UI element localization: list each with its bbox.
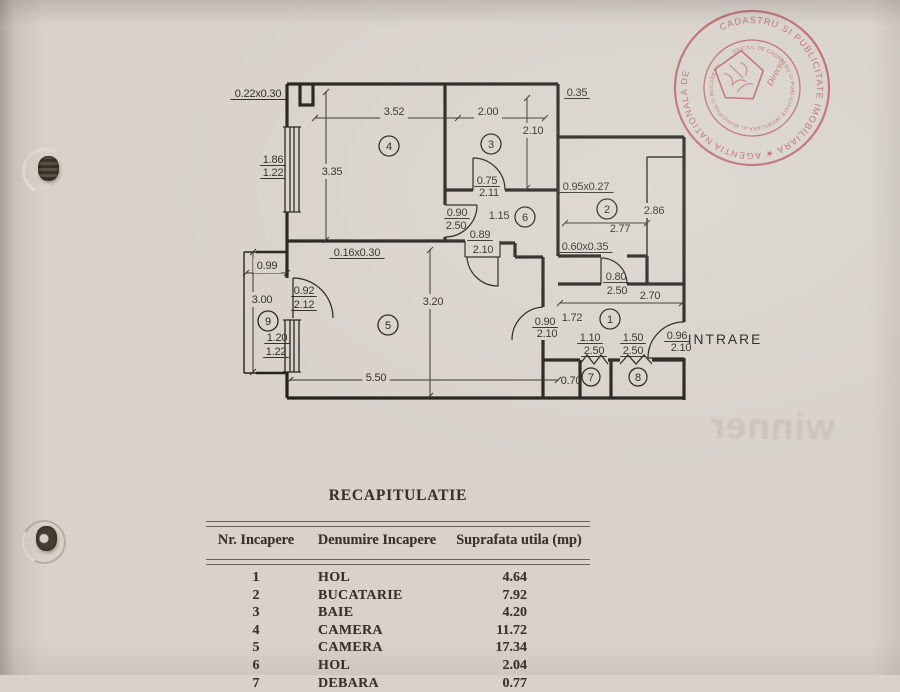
dimension-label: INTRARE — [688, 332, 763, 347]
dimension-label: 0.75 — [477, 175, 498, 187]
binder-ring — [36, 526, 57, 551]
room-number: 5 — [385, 320, 391, 332]
table-cell: 5 — [206, 639, 306, 657]
dimension-label: 2.50 — [623, 345, 644, 357]
dimension-label: 0.35 — [567, 87, 588, 99]
table-cell: 11.72 — [448, 622, 590, 640]
table-cell: 4.64 — [448, 569, 590, 587]
dimension-label: 2.10 — [473, 244, 494, 256]
dimension-label: 2.70 — [640, 290, 661, 302]
dimension-label: 0.90 — [535, 316, 556, 328]
bleed-through-watermark: winner — [662, 404, 883, 450]
stamp-coat-of-arms-detail — [722, 58, 755, 93]
table-cell: CAMERA — [306, 639, 448, 657]
room-number: 2 — [604, 204, 610, 216]
table-cell: 4.20 — [448, 604, 590, 622]
table-cell: 0.77 — [448, 675, 590, 692]
recap-title: RECAPITULATIE — [206, 487, 590, 509]
stamp-outer-text: CADASTRU SI PUBLICITATE IMOBILIARA ★ AGE… — [653, 0, 851, 187]
dimension-label: 3.52 — [384, 106, 405, 118]
dimension-label: 0.16x0.30 — [334, 247, 381, 259]
room-number: 9 — [265, 316, 271, 328]
dimension-label: 0.22x0.30 — [235, 88, 282, 100]
column-header-denumire: Denumire Incapere — [306, 532, 448, 549]
room-number: 6 — [522, 212, 528, 224]
dimension-label: 2.10 — [523, 125, 544, 137]
table-cell: BUCATARIE — [306, 587, 448, 605]
dimension-label: 0.89 — [470, 229, 491, 241]
room-number: 8 — [635, 372, 641, 384]
stamp-outer-ring — [648, 0, 856, 192]
table-cell: 2.04 — [448, 657, 590, 675]
dimension-label: 0.92 — [294, 285, 315, 297]
dimension-label: 1.22 — [263, 167, 284, 179]
room-number: 4 — [386, 141, 392, 153]
dimension-label: 2.50 — [446, 220, 467, 232]
dimension-label: 1.86 — [263, 154, 284, 166]
table-row: 1HOL4.64 — [206, 569, 590, 587]
table-cell: 7 — [206, 675, 306, 692]
dimension-label: 2.10 — [537, 328, 558, 340]
dimension-label: 0.60x0.35 — [562, 241, 609, 253]
dimension-label: 3.00 — [252, 294, 273, 306]
dimension-label: 1.20 — [267, 332, 288, 344]
scanned-cadastral-document: { "paper": { "bg": "#d8d2cb", "ink": "#2… — [0, 0, 900, 675]
dimension-label: 1.50 — [623, 332, 644, 344]
table-row: 5CAMERA17.34 — [206, 639, 590, 657]
dimension-label: 0.99 — [257, 260, 278, 272]
dimension-label: 3.20 — [423, 296, 444, 308]
dimension-label: 0.95x0.27 — [563, 181, 610, 193]
table-cell: 17.34 — [448, 639, 590, 657]
dimension-label: 3.35 — [322, 166, 343, 178]
table-cell: 3 — [206, 604, 306, 622]
table-row: 6HOL2.04 — [206, 657, 590, 675]
dimension-label: 2.11 — [479, 187, 499, 199]
table-row: 4CAMERA11.72 — [206, 622, 590, 640]
dimension-label: 2.12 — [294, 299, 315, 311]
dimension-label: 2.00 — [478, 106, 499, 118]
table-row: 3BAIE4.20 — [206, 604, 590, 622]
dimension-label: 0.96 — [667, 330, 688, 342]
column-header-suprafata: Suprafata utila (mp) — [448, 532, 590, 549]
room-number: 1 — [607, 314, 613, 326]
table-cell: DEBARA — [306, 675, 448, 692]
room-number: 7 — [588, 372, 594, 384]
table-row: 7DEBARA0.77 — [206, 675, 590, 692]
dimension-label: 2.50 — [584, 345, 605, 357]
table-cell: CAMERA — [306, 622, 448, 640]
dimension-label: 1.15 — [489, 210, 510, 222]
table-row: 2BUCATARIE7.92 — [206, 587, 590, 605]
dimension-label: 5.50 — [366, 372, 387, 384]
column-header-nr: Nr. Incapere — [206, 532, 306, 549]
dimension-label: 0.80 — [606, 271, 627, 283]
table-body: 1HOL4.642BUCATARIE7.923BAIE4.204CAMERA11… — [206, 565, 590, 692]
room-number: 3 — [488, 139, 494, 151]
dimension-label: 1.22 — [266, 346, 287, 358]
recapitulation-section: RECAPITULATIE Nr. Incapere Denumire Inca… — [206, 487, 590, 692]
table-cell: HOL — [306, 569, 448, 587]
stamp-coat-of-arms — [709, 46, 772, 110]
table-cell: 2 — [206, 587, 306, 605]
stamp-inner-text: OFICIUL DE CADASTRU SI PUBLICITATE IMOBI… — [694, 30, 810, 146]
dimension-label: 2.77 — [610, 223, 631, 235]
table-header-row: Nr. Incapere Denumire Incapere Suprafata… — [206, 527, 590, 553]
binder-ring — [38, 156, 59, 181]
round-red-stamp: CADASTRU SI PUBLICITATE IMOBILIARA ★ AGE… — [642, 0, 862, 198]
table-cell: 7.92 — [448, 587, 590, 605]
dimension-label: 1.72 — [562, 312, 583, 324]
dimension-label: 2.50 — [607, 285, 628, 297]
table-cell: 1 — [206, 569, 306, 587]
dimension-label: 0.70 — [561, 375, 582, 387]
table-cell: HOL — [306, 657, 448, 675]
hole-punch-bottom — [20, 516, 76, 572]
table-cell: 6 — [206, 657, 306, 675]
dimension-label: 2.86 — [644, 205, 665, 217]
dimension-label: 1.10 — [580, 332, 601, 344]
stamp-director-text: Director — [764, 55, 788, 88]
table-cell: BAIE — [306, 604, 448, 622]
table-cell: 4 — [206, 622, 306, 640]
dimension-label: 0.90 — [447, 207, 468, 219]
hole-punch-top — [20, 144, 76, 200]
